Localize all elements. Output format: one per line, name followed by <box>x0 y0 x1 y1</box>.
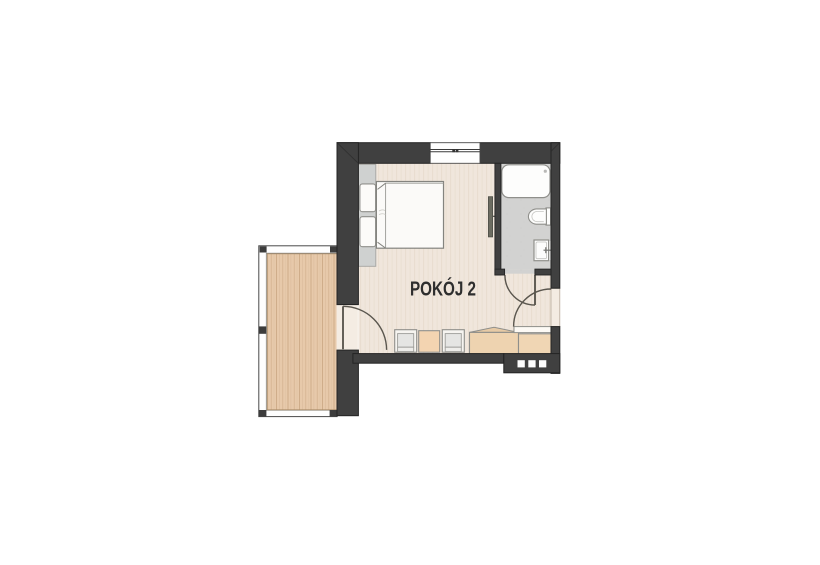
svg-text:POKÓJ 2: POKÓJ 2 <box>410 277 476 301</box>
